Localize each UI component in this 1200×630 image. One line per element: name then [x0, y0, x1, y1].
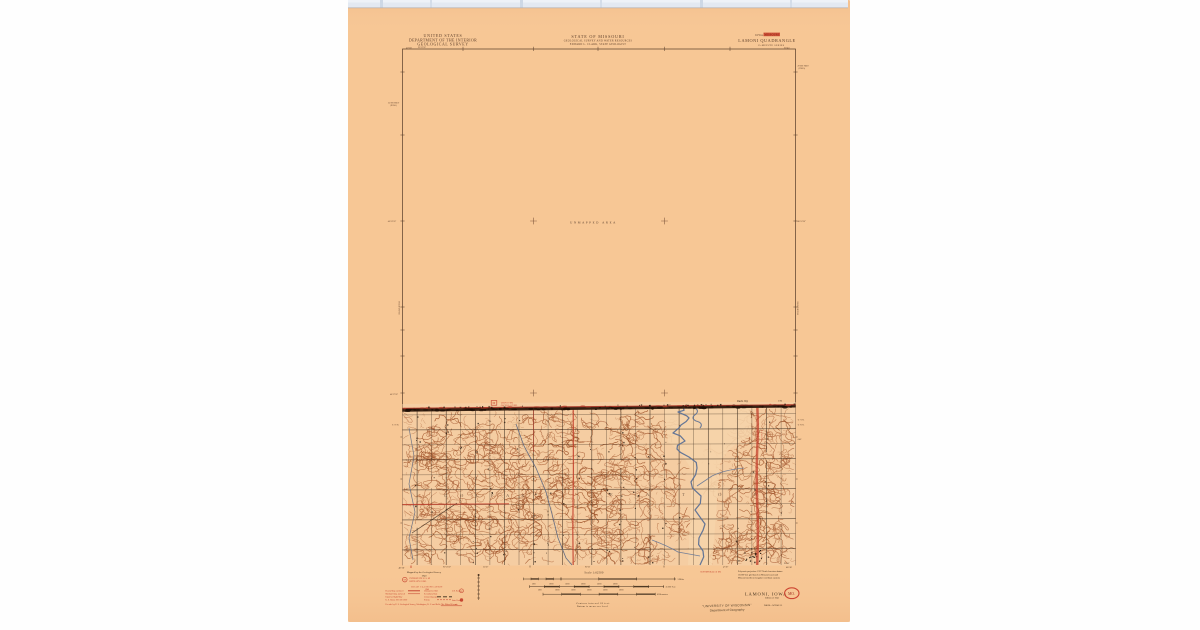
svg-text:(IOWA): (IOWA)	[799, 67, 806, 70]
svg-text:93°52′30″: 93°52′30″	[443, 566, 451, 569]
svg-text:1 M.: 1 M.	[778, 401, 783, 403]
svg-text:Polyconic projection. 1927 No: Polyconic projection. 1927 North America…	[738, 570, 783, 573]
svg-text:93°50′: 93°50′	[585, 566, 591, 569]
svg-text:Connecting spur: Connecting spur	[424, 596, 438, 599]
svg-text:T: T	[682, 492, 685, 497]
svg-text:40°30′: 40°30′	[399, 566, 406, 569]
svg-text:U. S. Route 200 500 1000: U. S. Route 200 500 1000	[386, 600, 408, 602]
svg-text:T. 70 N.: T. 70 N.	[798, 425, 805, 427]
svg-text:C: C	[444, 493, 447, 498]
svg-text:GRAND RIVER: GRAND RIVER	[398, 301, 401, 315]
svg-text:1940: 1940	[422, 574, 428, 577]
svg-text:State Route: State Route	[452, 600, 461, 602]
svg-text:U.S. Route: U.S. Route	[452, 591, 461, 593]
svg-text:47′30″: 47′30″	[723, 566, 728, 568]
svg-text:15000: 15000	[571, 590, 576, 592]
svg-text:Heavy-duty, surfaced: Heavy-duty, surfaced	[386, 590, 405, 593]
svg-text:40°52′30″: 40°52′30″	[388, 220, 397, 223]
svg-text:Secondary State: Secondary State	[424, 594, 438, 596]
svg-text:GEOLOGICAL SURVEY: GEOLOGICAL SURVEY	[417, 42, 468, 46]
svg-text:MISSOURI: MISSOURI	[764, 34, 779, 37]
svg-text:25000: 25000	[597, 584, 602, 586]
svg-text:6 Kilometers: 6 Kilometers	[657, 594, 668, 596]
svg-text:T. 71 N.: T. 71 N.	[798, 420, 805, 422]
svg-text:LEON 10 MI.: LEON 10 MI.	[501, 402, 514, 404]
svg-text:N4030—W9345/15: N4030—W9345/15	[764, 605, 783, 607]
svg-text:Datum is mean sea level: Datum is mean sea level	[577, 605, 608, 608]
svg-text:Mapped by the Geological Surve: Mapped by the Geological Survey	[407, 571, 442, 574]
svg-text:4 40′: 4 40′	[798, 439, 803, 441]
svg-text:3 Miles: 3 Miles	[678, 579, 685, 581]
svg-text:INTERSTATE U. S. 69: INTERSTATE U. S. 69	[410, 577, 431, 580]
svg-text:LAMONI: LAMONI	[760, 430, 763, 441]
svg-text:GRAND RIVER: GRAND RIVER	[796, 301, 799, 315]
svg-text:GEOLOGICAL SURVEY AND WATER RE: GEOLOGICAL SURVEY AND WATER RESOURCES	[564, 40, 633, 43]
svg-text:Edition of 1943: Edition of 1943	[765, 597, 780, 600]
svg-text:Scale 1:62500: Scale 1:62500	[584, 572, 604, 575]
svg-text:OSCEOLA 29 MI.: OSCEOLA 29 MI.	[501, 404, 518, 407]
svg-text:STATE OF MISSOURI: STATE OF MISSOURI	[571, 34, 624, 39]
svg-text:40°37′30″: 40°37′30″	[390, 393, 398, 396]
svg-text:10000: 10000	[555, 590, 560, 592]
svg-text:35 000 Feet: 35 000 Feet	[666, 587, 676, 589]
svg-text:BETHANY 19 MI.: BETHANY 19 MI.	[410, 580, 427, 583]
svg-text:15-MINUTE SERIES: 15-MINUTE SERIES	[758, 44, 785, 47]
svg-text:20000: 20000	[587, 590, 592, 592]
svg-text:E: E	[610, 492, 613, 497]
svg-text:UNMAPPED AREA: UNMAPPED AREA	[570, 220, 617, 224]
svg-text:30000: 30000	[619, 590, 624, 592]
svg-text:(IOWA): (IOWA)	[390, 104, 397, 107]
svg-text:MO.: MO.	[788, 592, 795, 596]
svg-text:Missouri (north) rectangular c: Missouri (north) rectangular coordinate …	[738, 577, 780, 580]
svg-text:10000: 10000	[549, 584, 554, 586]
svg-text:93°45′: 93°45′	[784, 562, 790, 565]
svg-text:10,000-foot grid based on Miss: 10,000-foot grid based on Missouri (east…	[738, 573, 779, 576]
svg-text:20000: 20000	[581, 584, 586, 586]
svg-text:T. 70 N.: T. 70 N.	[392, 425, 399, 427]
svg-text:15000: 15000	[565, 584, 570, 586]
svg-text:25000: 25000	[603, 590, 608, 592]
svg-text:5000: 5000	[538, 590, 542, 592]
svg-text:Medium-duty, surfaced: Medium-duty, surfaced	[386, 593, 406, 596]
svg-text:30000: 30000	[613, 584, 618, 586]
svg-text:Davis City: Davis City	[736, 400, 749, 403]
svg-text:Private: Private	[424, 600, 430, 602]
svg-text:L: L	[476, 493, 479, 498]
svg-text:Unimproved dirt: Unimproved dirt	[424, 591, 438, 593]
svg-text:5000: 5000	[532, 584, 536, 586]
svg-text:LAMONI QUADRANGLE: LAMONI QUADRANGLE	[738, 38, 795, 43]
svg-text:Improved light-duty: Improved light-duty	[386, 596, 404, 599]
svg-text:25′50″: 25′50″	[483, 566, 488, 568]
svg-text:F: F	[491, 493, 494, 498]
svg-text:CENTERVILLE 31 MI.: CENTERVILLE 31 MI.	[700, 571, 722, 573]
svg-text:EDWARD L. CLARK, STATE GEOLOGI: EDWARD L. CLARK, STATE GEOLOGIST	[570, 43, 626, 46]
svg-text:40°30′: 40°30′	[786, 566, 793, 569]
svg-text:40°52′30″: 40°52′30″	[798, 220, 807, 223]
